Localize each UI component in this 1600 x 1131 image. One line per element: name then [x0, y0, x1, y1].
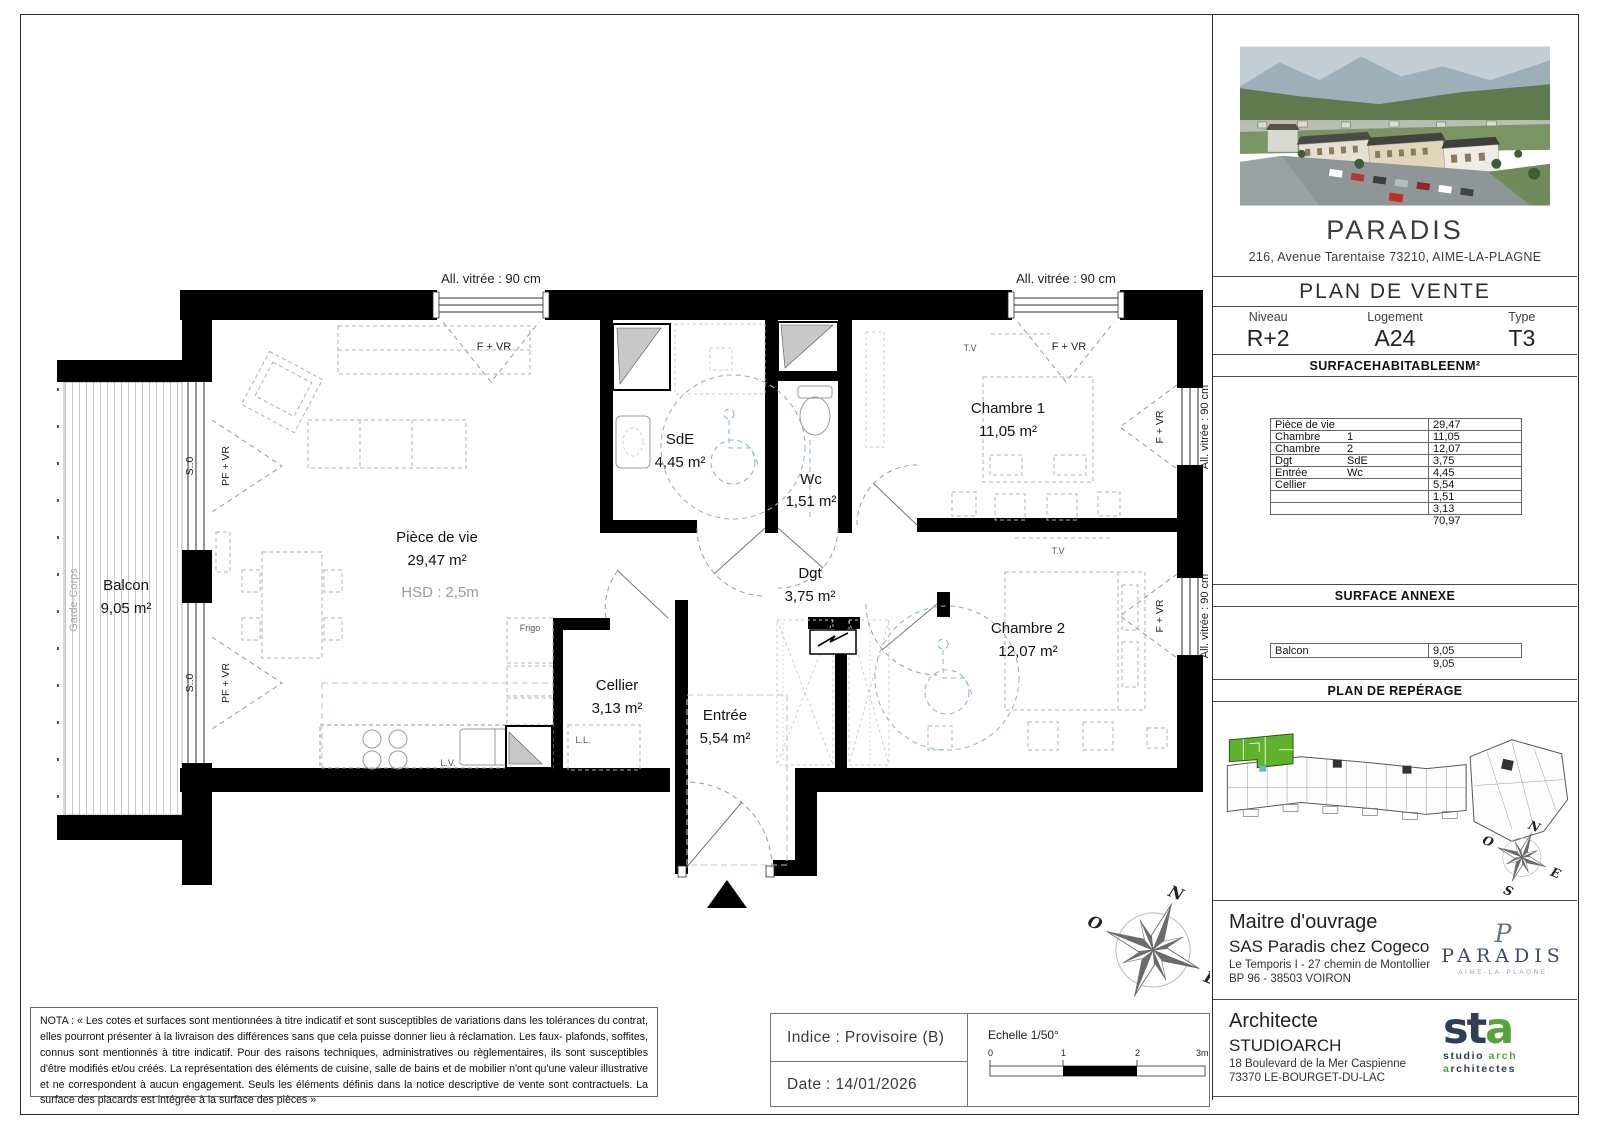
- balcon-name: Balcon: [103, 577, 149, 594]
- svg-text:1: 1: [1061, 1048, 1066, 1058]
- cellier-area: 3,13 m²: [592, 700, 643, 717]
- svg-text:2: 2: [1135, 1048, 1140, 1058]
- dgt-area: 3,75 m²: [785, 588, 836, 605]
- compass-e: E: [1201, 967, 1210, 990]
- dgt-name: Dgt: [798, 565, 822, 582]
- cellier-name: Cellier: [596, 677, 639, 694]
- scale-label: Echelle 1/50°: [988, 1028, 1209, 1042]
- surface-table: Pièce de vie29,47 Chambre111,05 Chambre2…: [1270, 418, 1522, 528]
- wc-area: 1,51 m²: [786, 493, 837, 510]
- allee-vitree-top2: All. vitrée : 90 cm: [1016, 271, 1116, 286]
- reperage-title: PLAN DE REPÉRAGE: [1213, 680, 1577, 702]
- s0-label2: S.:0: [184, 674, 196, 693]
- logement-label: Logement: [1323, 310, 1466, 324]
- floor-plan: Garde-Corps Balcon 9,05 m²: [20, 270, 1210, 1002]
- title-block: PARADIS 216, Avenue Tarentaise 73210, AI…: [1212, 15, 1577, 1100]
- svg-text:3m: 3m: [1196, 1048, 1209, 1058]
- compass-o: O: [1085, 911, 1105, 934]
- highlighted-unit: [1229, 734, 1293, 768]
- f-vr-right2: F + VR: [1154, 599, 1166, 632]
- table-row: EntréeWc4,45: [1270, 466, 1522, 479]
- exterior-walls: [180, 290, 1203, 885]
- type-label: Type: [1467, 310, 1577, 324]
- revision-box: Indice : Provisoire (B) Date : 14/01/202…: [770, 1013, 968, 1107]
- s0-label1: S.:0: [184, 457, 196, 476]
- table-row: DgtSdE3,75: [1270, 454, 1522, 467]
- f-vr-right1: F + VR: [1154, 410, 1166, 443]
- type-value: T3: [1467, 325, 1577, 352]
- annexe-table: Balcon9,05 9,05: [1270, 643, 1522, 671]
- svg-text:0: 0: [988, 1048, 993, 1058]
- room-wc: Wc 1,51 m²: [778, 322, 838, 518]
- niveau-value: R+2: [1213, 325, 1323, 352]
- nota-text: NOTA : « Les cotes et surfaces sont ment…: [30, 1007, 658, 1097]
- plan-de-vente-sheet: Garde-Corps Balcon 9,05 m²: [0, 0, 1600, 1131]
- sde-name: SdE: [666, 431, 694, 448]
- entrance-arrow: [707, 880, 747, 908]
- svg-text:S: S: [1501, 882, 1515, 899]
- tv-label-ch1: T.V: [963, 343, 976, 353]
- entree-area: 5,54 m²: [700, 730, 751, 747]
- room-entree: Entrée 5,54 m²: [687, 695, 787, 865]
- room-cellier: L.L. Cellier 3,13 m²: [568, 677, 642, 770]
- allee-vitree-right2: All. vitrée : 90 cm: [1199, 574, 1210, 658]
- room-piece-de-vie: L.V. Frigo Pièce de vie 29,47 m²: [216, 326, 553, 769]
- paradis-monogram-icon: P: [1435, 923, 1571, 945]
- wc-name: Wc: [800, 471, 822, 488]
- frigo-label: Frigo: [520, 623, 541, 633]
- ll-label: L.L.: [575, 735, 590, 745]
- chambre1-area: 11,05 m²: [979, 423, 1037, 440]
- unit-meta: Niveau R+2 Logement A24 Type T3: [1213, 307, 1577, 355]
- svg-text:O: O: [1480, 832, 1496, 850]
- compass-s: S: [1120, 999, 1138, 1002]
- studioarch-logo: sta studio arch architectes: [1443, 1008, 1561, 1076]
- project-header: PARADIS 216, Avenue Tarentaise 73210, AI…: [1213, 15, 1577, 277]
- indice-value: Indice : Provisoire (B): [771, 1014, 967, 1062]
- table-row: Chambre212,07: [1270, 442, 1522, 455]
- svg-text:E: E: [1548, 864, 1564, 882]
- allee-vitree-top1: All. vitrée : 90 cm: [441, 271, 541, 286]
- project-address: 216, Avenue Tarentaise 73210, AIME-LA-PL…: [1213, 250, 1577, 264]
- entree-name: Entrée: [703, 707, 747, 724]
- f-vr-top1: F + VR: [477, 341, 512, 353]
- maitre-douvrage-block: Maitre d'ouvrage SAS Paradis chez Cogeco…: [1213, 901, 1577, 1000]
- table-row: Pièce de vie29,47: [1270, 418, 1522, 431]
- garde-corps-label: Garde-Corps: [68, 568, 80, 632]
- lv-label: L.V.: [440, 758, 455, 768]
- sde-area: 4,45 m²: [655, 454, 706, 471]
- surface-habitable-title: SURFACEHABITABLEENM²: [1213, 355, 1577, 377]
- table-row: Balcon9,05: [1270, 643, 1522, 658]
- niveau-label: Niveau: [1213, 310, 1323, 324]
- date-value: Date : 14/01/2026: [771, 1062, 967, 1108]
- logement-value: A24: [1323, 325, 1466, 352]
- chambre2-name: Chambre 2: [991, 620, 1065, 637]
- project-name: PARADIS: [1213, 215, 1577, 246]
- pf-vr-label2: PF + VR: [220, 663, 232, 703]
- surface-total: 70,97: [1429, 515, 1522, 528]
- project-photo: [1240, 46, 1550, 206]
- table-row: Cellier5,54: [1270, 478, 1522, 491]
- pf-vr-label1: PF + VR: [220, 446, 232, 486]
- piece-de-vie-area: 29,47 m²: [407, 552, 466, 569]
- windows: All. vitrée : 90 cm F + VR All. vitrée :…: [184, 271, 1210, 763]
- balcon-area: 9,05 m²: [101, 600, 152, 617]
- tv-label-ch2: T.V: [1051, 546, 1064, 556]
- surface-table-section: Pièce de vie29,47 Chambre111,05 Chambre2…: [1213, 377, 1577, 585]
- hsd-label: HSD : 2,5m: [401, 584, 479, 601]
- table-row: 1,51: [1270, 490, 1522, 503]
- surface-annexe-title: SURFACE ANNEXE: [1213, 585, 1577, 607]
- allee-vitree-right1: All. vitrée : 90 cm: [1199, 385, 1210, 469]
- table-row: 3,13: [1270, 502, 1522, 515]
- scale-bar: 0 1 2 3m: [968, 1044, 1210, 1088]
- table-row: Chambre111,05: [1270, 430, 1522, 443]
- compass-rose: N S E O: [1059, 858, 1210, 1002]
- chambre2-area: 12,07 m²: [998, 643, 1057, 660]
- balcony: Garde-Corps Balcon 9,05 m²: [57, 360, 183, 840]
- surface-annexe-section: Balcon9,05 9,05: [1213, 607, 1577, 680]
- architecte-block: Architecte STUDIOARCH 18 Boulevard de la…: [1213, 1000, 1577, 1097]
- piece-de-vie-name: Pièce de vie: [396, 529, 478, 546]
- reperage-map: N S E O: [1213, 702, 1577, 901]
- room-chambre1: T.V Chambre 1 11,05 m²: [866, 332, 1120, 520]
- annexe-total: 9,05: [1429, 658, 1522, 671]
- compass-n: N: [1165, 881, 1188, 905]
- paradis-logo: P PARADIS AIME-LA-PLAGNE: [1435, 923, 1571, 976]
- scale-box: Echelle 1/50° 0 1 2 3m: [968, 1013, 1210, 1107]
- chambre1-name: Chambre 1: [971, 400, 1045, 417]
- room-dgt: Dgt 3,75 m²: [785, 565, 856, 654]
- f-vr-top2: F + VR: [1052, 341, 1087, 353]
- doc-title: PLAN DE VENTE: [1213, 277, 1577, 307]
